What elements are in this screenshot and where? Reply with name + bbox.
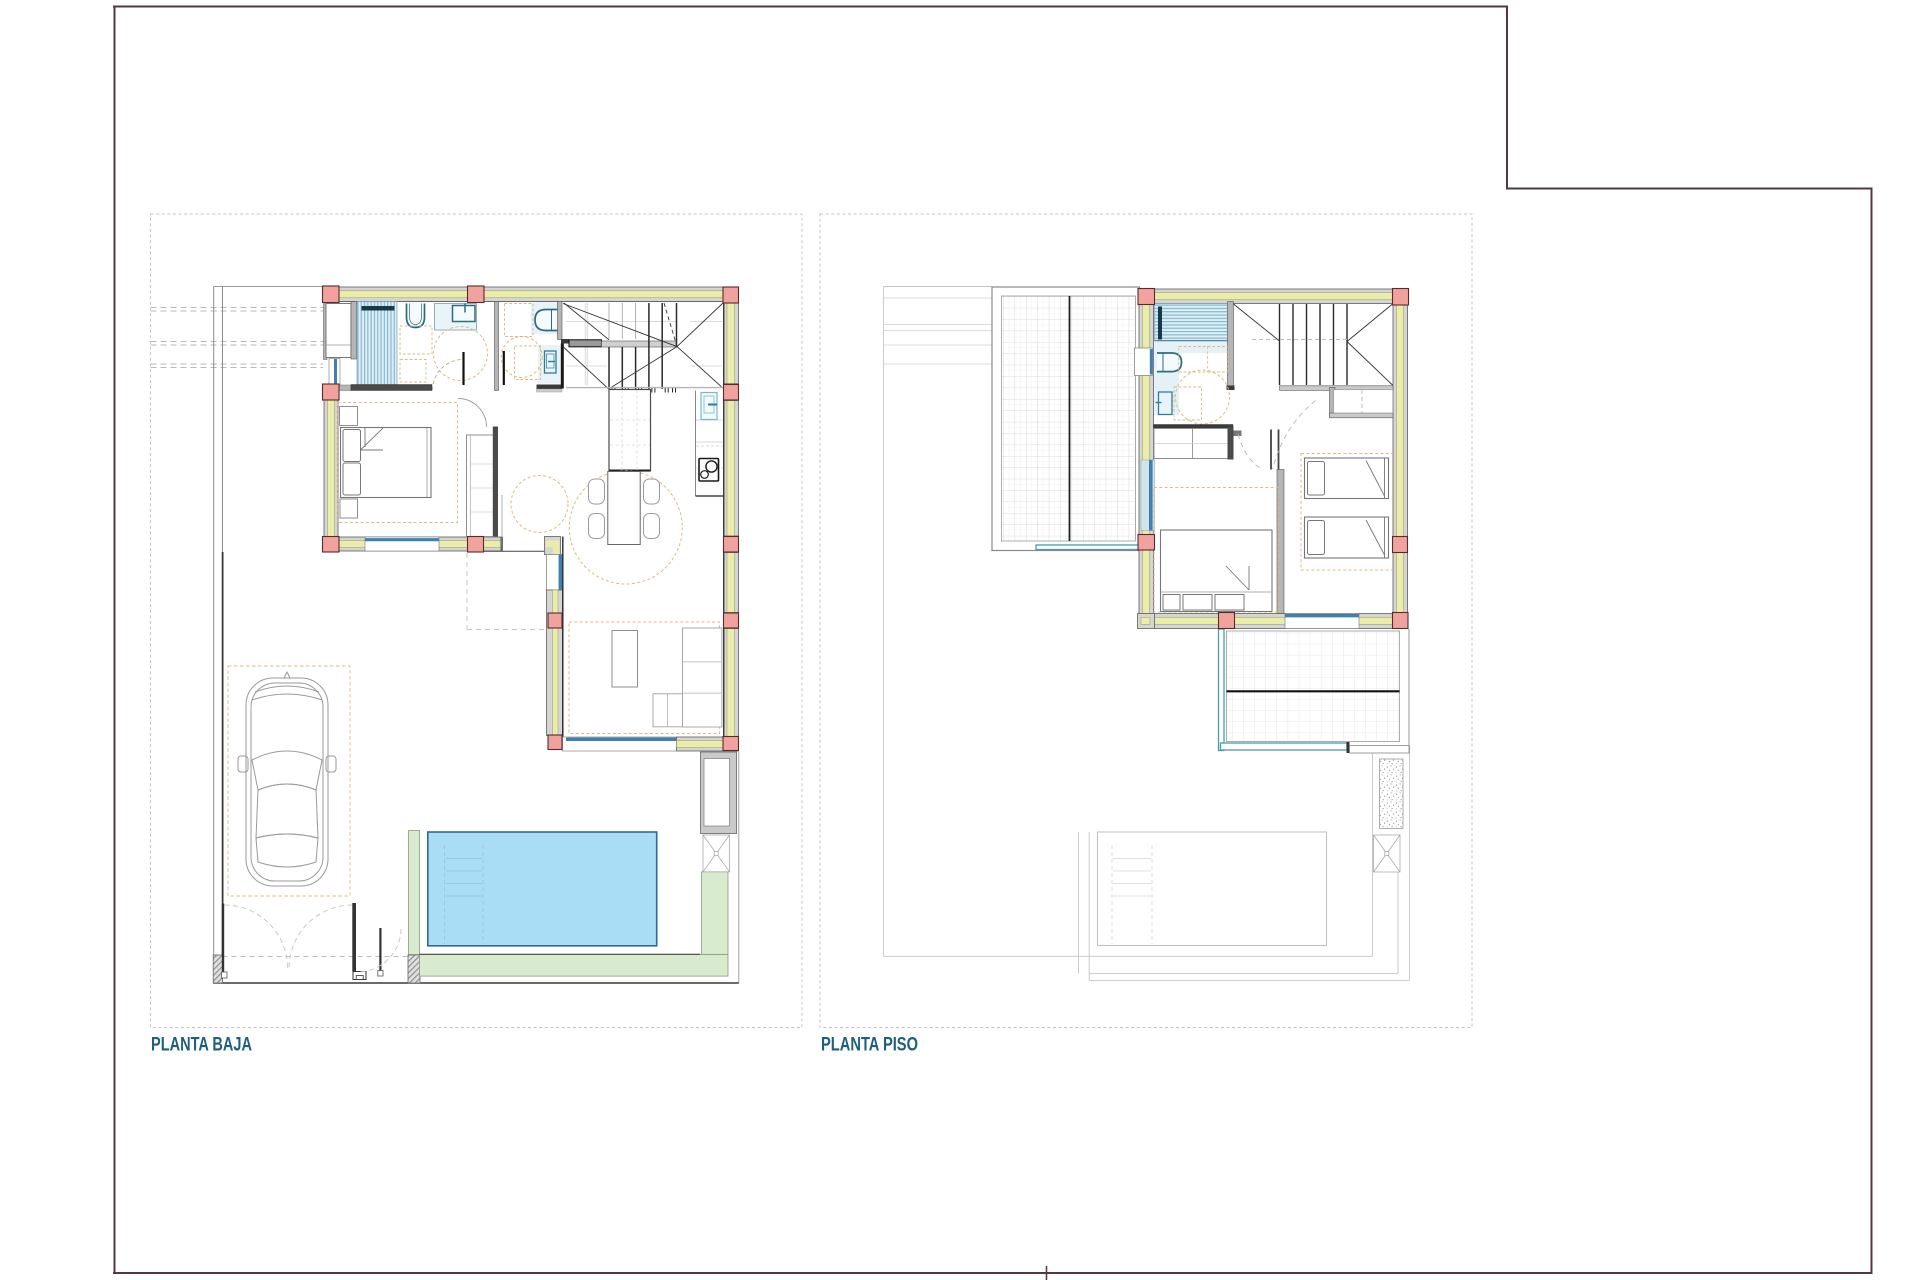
svg-text:PLANTA BAJA: PLANTA BAJA	[151, 1034, 252, 1056]
svg-text:PLANTA PISO: PLANTA PISO	[821, 1034, 918, 1056]
